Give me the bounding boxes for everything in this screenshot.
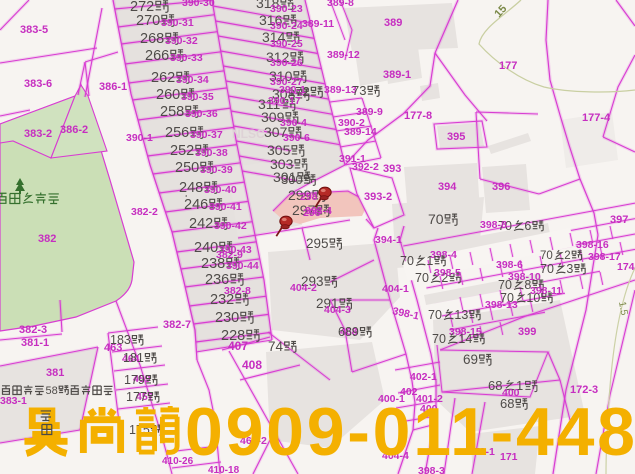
svg-text:398-6: 398-6 bbox=[496, 259, 523, 271]
svg-text:230: 230 bbox=[215, 310, 239, 326]
svg-text:386-2: 386-2 bbox=[60, 124, 88, 136]
svg-text:398-16: 398-16 bbox=[576, 239, 609, 251]
svg-text:70: 70 bbox=[540, 262, 554, 276]
svg-text:390-4: 390-4 bbox=[280, 117, 307, 129]
svg-text:389-12: 389-12 bbox=[327, 49, 360, 61]
svg-text:177-8: 177-8 bbox=[404, 110, 432, 122]
svg-text:177-4: 177-4 bbox=[582, 112, 611, 124]
svg-text:390-26: 390-26 bbox=[270, 57, 303, 69]
svg-text:397: 397 bbox=[610, 214, 628, 226]
svg-text:398-17: 398-17 bbox=[588, 251, 621, 263]
svg-text:404-2: 404-2 bbox=[290, 282, 317, 294]
svg-text:58: 58 bbox=[46, 385, 58, 397]
svg-text:13: 13 bbox=[454, 308, 468, 322]
svg-text:174-2: 174-2 bbox=[617, 261, 635, 273]
svg-text:398-11: 398-11 bbox=[530, 285, 562, 297]
svg-text:70: 70 bbox=[400, 254, 414, 268]
svg-text:381: 381 bbox=[46, 367, 64, 379]
svg-text:390-17: 390-17 bbox=[268, 95, 301, 107]
svg-text:386-1: 386-1 bbox=[99, 81, 127, 93]
svg-text:390-38: 390-38 bbox=[195, 147, 228, 159]
svg-text:177: 177 bbox=[126, 390, 147, 404]
svg-text:390-39: 390-39 bbox=[200, 164, 233, 176]
svg-text:177: 177 bbox=[499, 60, 517, 72]
svg-text:390-32: 390-32 bbox=[165, 35, 198, 47]
svg-text:240: 240 bbox=[194, 240, 218, 256]
svg-text:398-13: 398-13 bbox=[485, 299, 518, 311]
svg-text:390-31: 390-31 bbox=[161, 17, 194, 29]
svg-text:390-33: 390-33 bbox=[170, 52, 203, 64]
svg-text:408: 408 bbox=[242, 358, 262, 372]
svg-text:3: 3 bbox=[566, 262, 573, 276]
svg-text:398-8: 398-8 bbox=[480, 219, 507, 231]
svg-text:382-7: 382-7 bbox=[163, 319, 191, 331]
svg-text:68: 68 bbox=[488, 378, 502, 393]
svg-text:382-2: 382-2 bbox=[131, 206, 158, 218]
svg-text:242: 242 bbox=[189, 216, 213, 232]
svg-text:390-24: 390-24 bbox=[270, 20, 303, 32]
svg-text:258: 258 bbox=[160, 104, 184, 120]
svg-text:74: 74 bbox=[268, 339, 284, 354]
svg-text:181: 181 bbox=[123, 351, 144, 365]
svg-text:70: 70 bbox=[415, 271, 429, 285]
svg-text:2: 2 bbox=[564, 250, 570, 262]
svg-text:396: 396 bbox=[492, 181, 510, 193]
svg-text:398-5: 398-5 bbox=[434, 267, 461, 279]
svg-text:179: 179 bbox=[124, 373, 145, 387]
svg-text:246: 246 bbox=[184, 197, 208, 213]
svg-text:295: 295 bbox=[306, 236, 329, 251]
svg-text:266: 266 bbox=[145, 48, 169, 64]
svg-text:1: 1 bbox=[426, 254, 433, 268]
svg-text:183: 183 bbox=[110, 333, 131, 347]
svg-text:382-8: 382-8 bbox=[224, 285, 251, 297]
svg-text:394: 394 bbox=[438, 181, 457, 193]
svg-text:70: 70 bbox=[432, 332, 446, 346]
svg-text:383-6: 383-6 bbox=[24, 78, 52, 90]
svg-text:390-23: 390-23 bbox=[270, 3, 303, 15]
svg-text:300: 300 bbox=[281, 172, 303, 187]
svg-text:383-1: 383-1 bbox=[0, 395, 27, 407]
svg-text:250: 250 bbox=[175, 160, 199, 176]
svg-text:252: 252 bbox=[170, 143, 194, 159]
svg-text:256: 256 bbox=[165, 125, 189, 141]
svg-text:248: 248 bbox=[179, 180, 203, 196]
svg-text:390-30: 390-30 bbox=[182, 0, 215, 9]
svg-text:395: 395 bbox=[447, 131, 465, 143]
svg-text:390-40: 390-40 bbox=[204, 184, 237, 196]
svg-text:6: 6 bbox=[524, 219, 531, 233]
svg-text:70: 70 bbox=[540, 250, 553, 262]
svg-text:390-37: 390-37 bbox=[190, 129, 223, 141]
svg-text:382-3: 382-3 bbox=[19, 324, 47, 336]
svg-text:73: 73 bbox=[352, 83, 366, 98]
svg-text:381-1: 381-1 bbox=[21, 337, 49, 349]
svg-text:393-2: 393-2 bbox=[364, 191, 392, 203]
svg-text:389-11: 389-11 bbox=[302, 18, 334, 30]
svg-text:390-6: 390-6 bbox=[283, 132, 310, 144]
svg-text:390-36: 390-36 bbox=[185, 108, 218, 120]
svg-text:NLSC: NLSC bbox=[232, 127, 265, 141]
svg-text:392-2: 392-2 bbox=[352, 161, 379, 173]
svg-text:389: 389 bbox=[384, 17, 402, 29]
svg-text:270: 270 bbox=[136, 13, 160, 29]
svg-text:390-1: 390-1 bbox=[126, 132, 153, 144]
svg-text:389-14: 389-14 bbox=[344, 126, 377, 138]
svg-text:382: 382 bbox=[38, 233, 56, 245]
svg-text:393-4: 393-4 bbox=[305, 205, 332, 217]
svg-text:394-1: 394-1 bbox=[375, 234, 402, 246]
svg-text:393: 393 bbox=[383, 163, 401, 175]
svg-text:383-2: 383-2 bbox=[24, 128, 52, 140]
svg-text:14: 14 bbox=[458, 332, 472, 346]
svg-text:399: 399 bbox=[518, 326, 536, 338]
svg-text:390-44: 390-44 bbox=[226, 260, 259, 272]
svg-text:389-8: 389-8 bbox=[327, 0, 354, 9]
svg-text:298: 298 bbox=[300, 191, 318, 203]
svg-text:404-1: 404-1 bbox=[382, 283, 409, 295]
svg-text:407: 407 bbox=[228, 339, 248, 353]
svg-text:390-42: 390-42 bbox=[214, 220, 247, 232]
svg-text:70: 70 bbox=[428, 308, 442, 322]
svg-text:262: 262 bbox=[151, 70, 175, 86]
svg-text:69: 69 bbox=[463, 352, 478, 367]
svg-text:268: 268 bbox=[140, 31, 164, 47]
svg-text:390-34: 390-34 bbox=[176, 74, 209, 86]
svg-text:402-1: 402-1 bbox=[410, 371, 437, 383]
svg-text:398-10: 398-10 bbox=[508, 271, 541, 283]
svg-text:390-41: 390-41 bbox=[209, 201, 242, 213]
svg-text:260: 260 bbox=[156, 87, 180, 103]
svg-text:382-9: 382-9 bbox=[216, 249, 243, 261]
svg-text:383-5: 383-5 bbox=[20, 24, 48, 36]
svg-text:390-25: 390-25 bbox=[270, 38, 303, 50]
svg-text:404-3: 404-3 bbox=[324, 304, 351, 316]
svg-text:389-1: 389-1 bbox=[383, 69, 411, 81]
svg-text:0909-011-448: 0909-011-448 bbox=[185, 394, 635, 470]
svg-text:70: 70 bbox=[428, 211, 444, 227]
svg-text:689: 689 bbox=[338, 325, 359, 339]
svg-text:390-35: 390-35 bbox=[181, 91, 214, 103]
